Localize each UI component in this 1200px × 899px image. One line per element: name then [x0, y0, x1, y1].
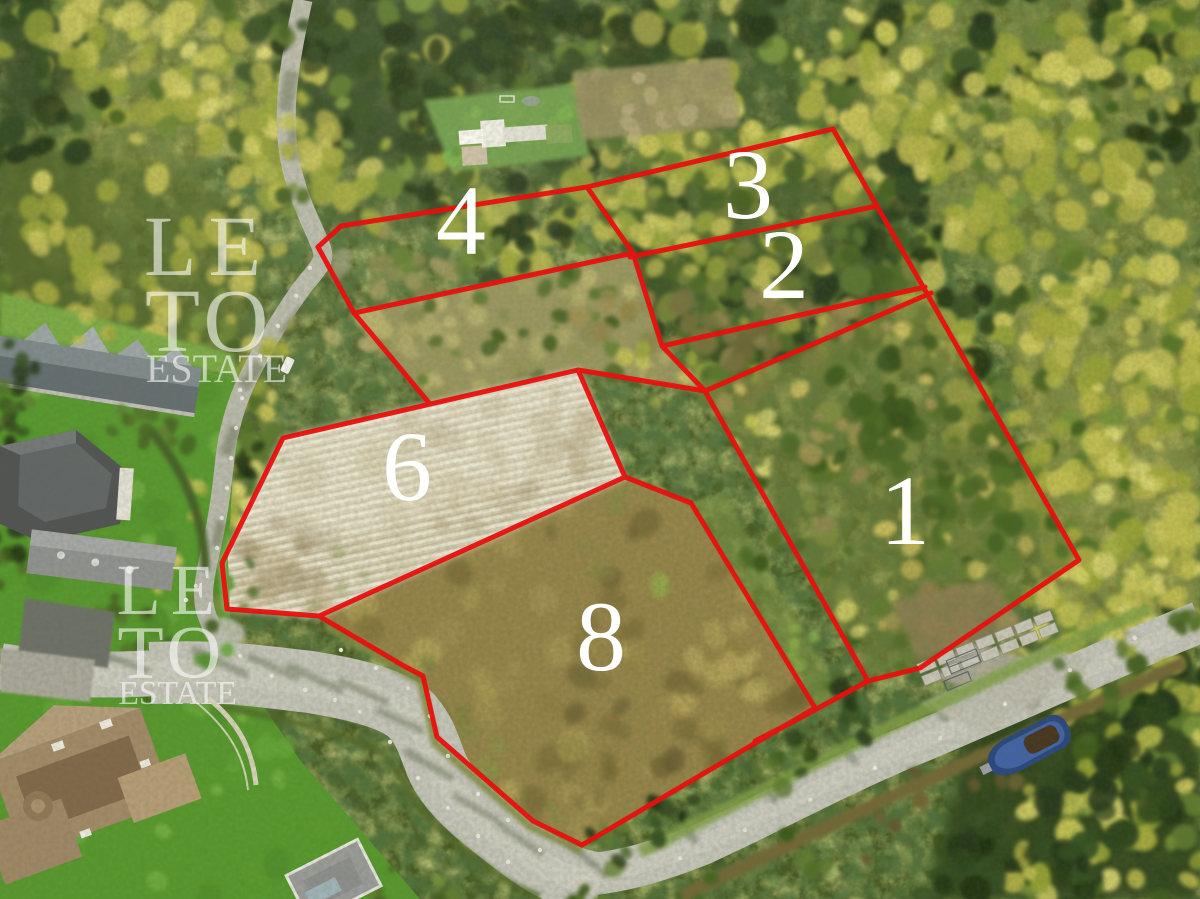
svg-text:ESTATE: ESTATE	[118, 675, 237, 712]
svg-text:1: 1	[880, 455, 930, 566]
svg-text:8: 8	[576, 581, 626, 692]
svg-text:6: 6	[382, 411, 432, 522]
svg-text:2: 2	[759, 209, 809, 320]
svg-text:ESTATE: ESTATE	[146, 346, 287, 391]
svg-text:4: 4	[436, 165, 486, 276]
